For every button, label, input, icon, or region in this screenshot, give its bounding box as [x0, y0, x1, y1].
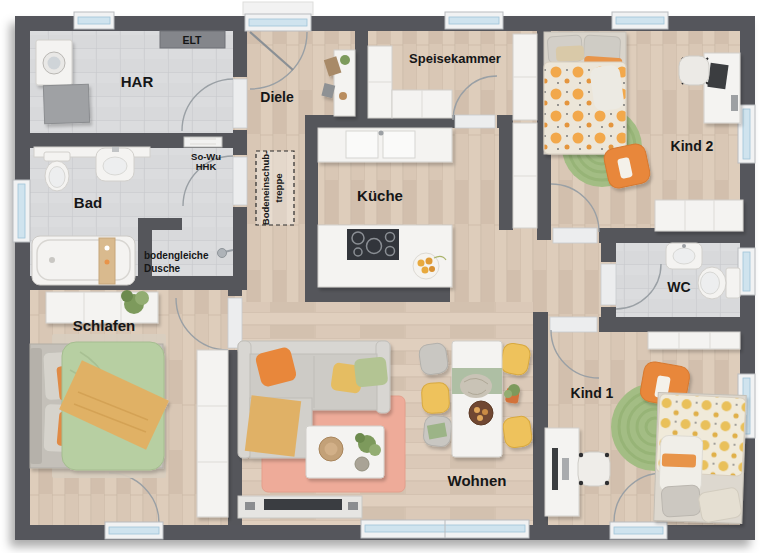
window-kind2-right — [738, 105, 755, 163]
room-label-wohnen: Wohnen — [448, 472, 507, 489]
washing-machine — [36, 40, 72, 85]
toilet-icon — [44, 152, 70, 191]
window-livingroom-large — [361, 520, 529, 538]
storage-box — [43, 84, 89, 124]
dining-set — [418, 341, 533, 457]
kind2-desk-chair — [679, 56, 709, 85]
kind2-floor-pillow — [602, 142, 651, 190]
kitchen-counter — [318, 128, 452, 162]
room-label-schlafen: Schlafen — [73, 317, 136, 334]
laptop-icon — [707, 63, 728, 89]
dusche-label-line1: bodengleiche — [144, 250, 209, 261]
elt-label: ELT — [182, 34, 202, 46]
wc-sink-icon — [666, 243, 702, 269]
room-label-kind1: Kind 1 — [571, 385, 614, 401]
tv-icon — [264, 499, 342, 510]
kind1-desk-chair — [578, 452, 610, 486]
kitchen-island — [318, 225, 452, 287]
kind2-desk — [704, 53, 740, 123]
kind2-bed — [544, 32, 626, 154]
room-label-kind2: Kind 2 — [671, 138, 714, 154]
window-wc — [738, 248, 755, 295]
kind1-bed — [654, 393, 746, 524]
so-wu-label-line2: HHK — [196, 161, 217, 172]
room-label-wc: WC — [667, 279, 690, 295]
floorplan-image: HAR ELT Diele Speisekammer Kind 2 Bad So… — [0, 0, 775, 553]
floorplan-svg: HAR ELT Diele Speisekammer Kind 2 Bad So… — [0, 0, 775, 553]
room-label-har: HAR — [121, 73, 154, 90]
bedroom-side-wardrobe — [197, 350, 228, 517]
sofa-throw — [245, 395, 301, 457]
terrace-door-bedroom — [105, 522, 163, 539]
corridor-cabinet — [513, 34, 537, 228]
room-label-diele: Diele — [260, 89, 294, 105]
window-bath-left — [13, 180, 30, 242]
kind1-wardrobe — [648, 332, 740, 349]
terrace-door-kind1 — [610, 522, 667, 539]
kind2-wardrobe — [655, 200, 743, 231]
bathtub — [32, 236, 135, 285]
window-har — [74, 12, 114, 29]
dining-table — [452, 341, 502, 457]
room-label-bad: Bad — [74, 194, 102, 211]
fruit-bowl-dining — [469, 401, 493, 425]
sink-icon — [96, 147, 134, 181]
dusche-label-line2: Dusche — [144, 263, 181, 274]
treppe-label-line1: Bodeneinschub- — [260, 151, 271, 225]
window-pantry — [445, 12, 503, 29]
monitor-icon — [552, 448, 558, 490]
pillow-green — [354, 356, 389, 387]
window-kind2-top — [612, 12, 668, 29]
coffee-table — [306, 426, 384, 478]
tv-sideboard — [238, 496, 362, 518]
treppe-label-line2: treppe — [273, 173, 284, 202]
double-bed — [30, 342, 169, 470]
room-label-speisekammer: Speisekammer — [409, 51, 501, 66]
kind1-desk — [545, 428, 579, 516]
wc-toilet-icon — [698, 267, 740, 299]
room-label-kueche: Küche — [357, 187, 403, 204]
